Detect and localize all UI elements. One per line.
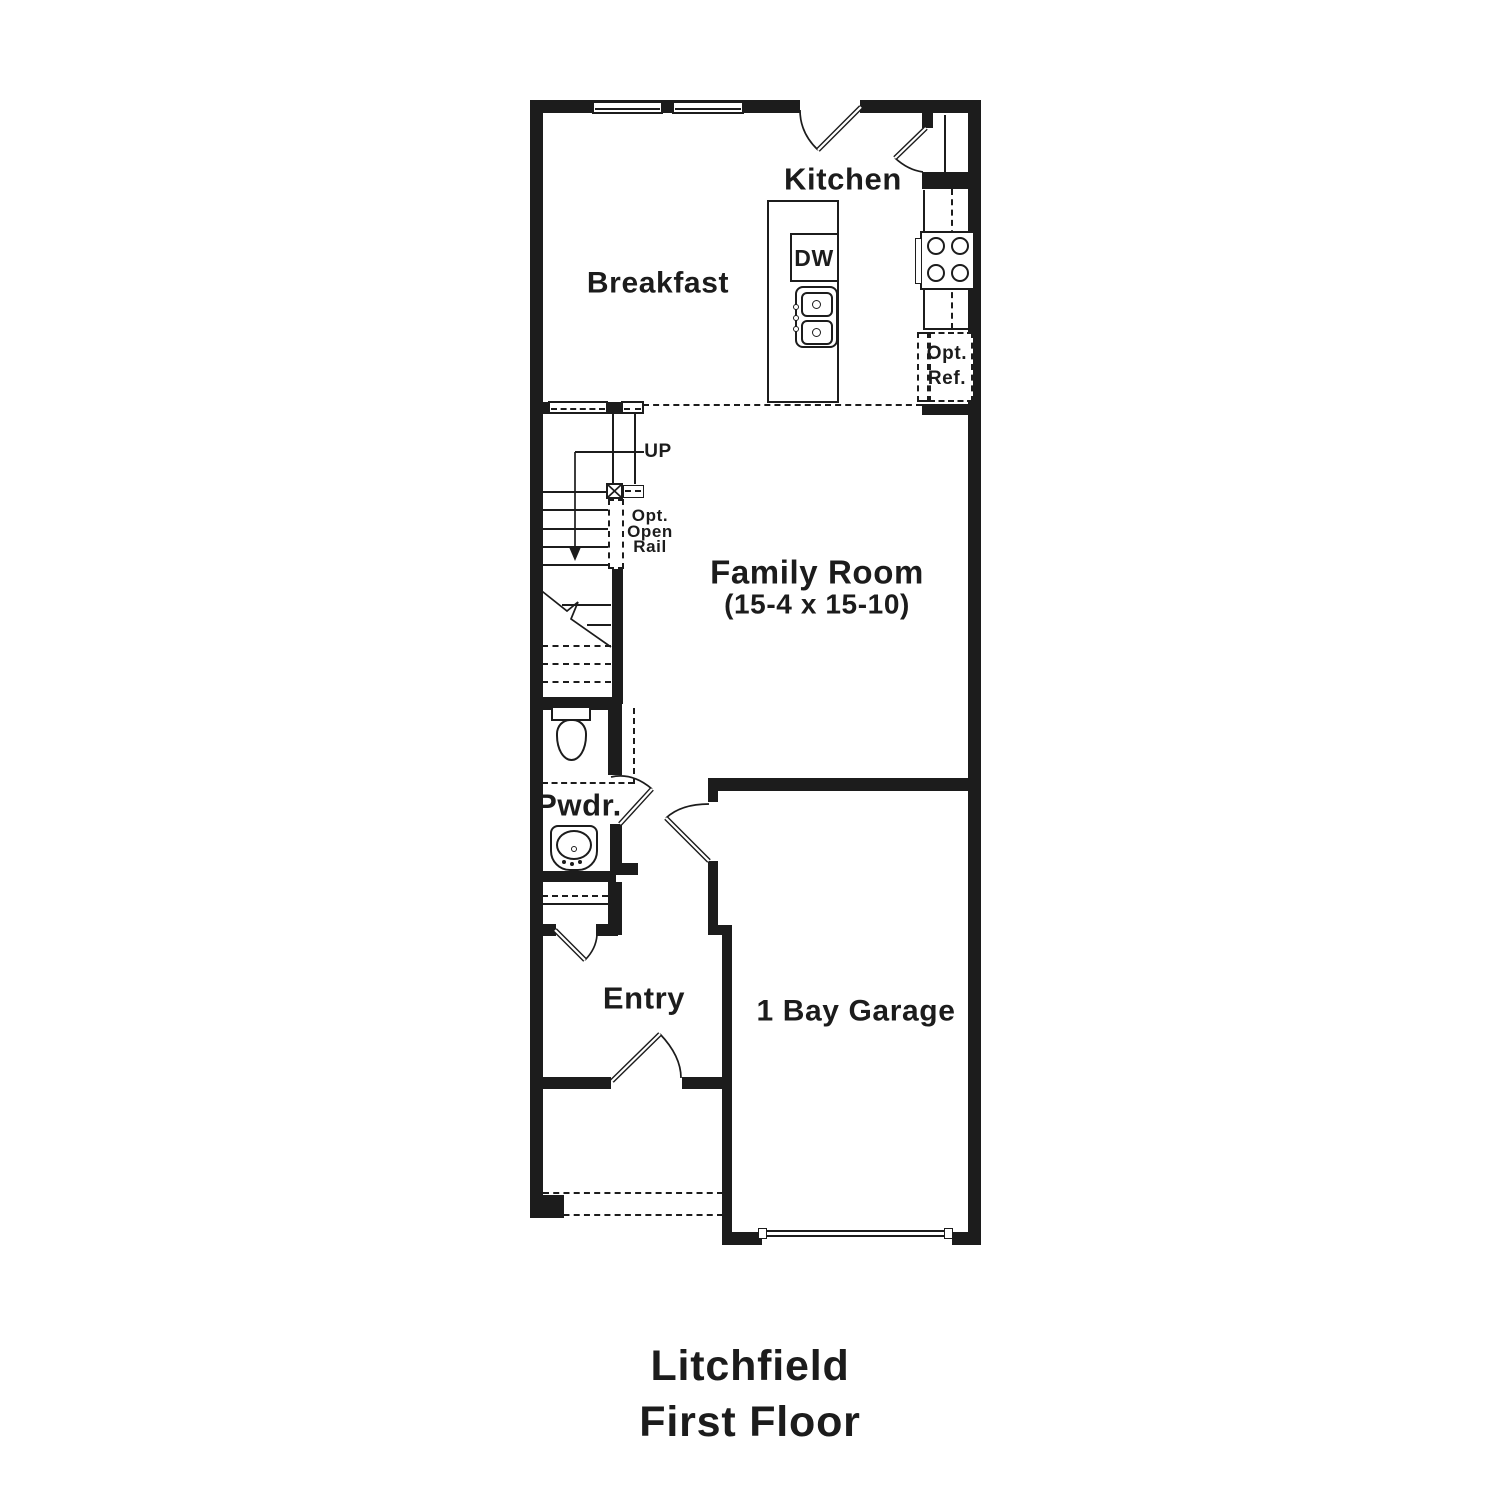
stair-upper-tread-dashed-2 (542, 663, 611, 665)
window-glass-line (595, 108, 660, 110)
stair-guide-line-2 (634, 414, 636, 484)
powder-faucet-dot-2 (570, 862, 574, 866)
room-label-family-room-dims: (15-4 x 15-10) (724, 589, 910, 618)
wall-stair-right (612, 564, 623, 704)
stair-upper-tread-dashed-3 (542, 681, 611, 683)
closet-door-swing (555, 930, 597, 960)
stair-rail-vertical (608, 499, 624, 569)
stair-guide-line-1 (612, 414, 614, 484)
floor-plan-page: DW Opt. Ref. UP Opt. Open Rail (0, 0, 1500, 1500)
wall-top-left (530, 100, 800, 113)
stair-tread-4 (542, 546, 611, 548)
sink-knob-1 (793, 304, 799, 310)
wall-garage-left-lower (722, 925, 732, 1245)
back-door-swing (800, 107, 861, 150)
wall-closet-door-left (530, 924, 556, 936)
stove-handle (915, 238, 922, 284)
up-leader-line (575, 451, 644, 453)
powder-sink-bowl (556, 830, 592, 860)
window-breakfast-top-2 (672, 101, 744, 114)
front-door-swing (612, 1034, 681, 1081)
window-breakfast-side-1 (548, 401, 608, 414)
stair-tread-partial-1 (562, 604, 611, 606)
opt-ref-line1: Opt. (927, 341, 967, 366)
stove-burner-3 (927, 264, 945, 282)
window-glass-line (675, 108, 741, 110)
wall-breakfast-corner (530, 402, 548, 414)
window-breakfast-side-2 (621, 401, 644, 414)
kitchen-breakfast-divider-dashed (643, 404, 922, 406)
garage-entry-door-swing (666, 804, 709, 861)
sink-knob-2 (793, 315, 799, 321)
room-label-garage: 1 Bay Garage (757, 995, 956, 1027)
wall-window-stub (607, 402, 622, 414)
opt-open-rail-label: Opt. Open Rail (627, 508, 673, 555)
stair-tread-1 (542, 491, 611, 493)
stove-burner-2 (951, 237, 969, 255)
wall-left-exterior (530, 100, 543, 1218)
powder-sink-drain (571, 846, 577, 852)
rail-hatch-line (625, 490, 641, 492)
wall-top-right (860, 100, 981, 113)
window-glass-line (624, 408, 641, 410)
dishwasher-label: DW (794, 246, 834, 270)
garage-door-cap-right (944, 1228, 953, 1239)
rail-line3: Rail (627, 539, 673, 555)
opt-ref-label: Opt. Ref. (927, 341, 967, 391)
stair-tread-5 (542, 564, 611, 566)
wall-garage-left-mid (708, 861, 718, 925)
room-label-kitchen: Kitchen (784, 164, 902, 197)
stair-rail-horizontal (623, 485, 644, 498)
pantry-shelf-line (944, 115, 946, 172)
sink-drain-bottom (812, 328, 821, 337)
sink-knob-3 (793, 326, 799, 332)
stair-upper-tread-dashed-1 (542, 645, 611, 647)
stair-newel-post (606, 483, 623, 499)
room-label-breakfast: Breakfast (587, 267, 729, 299)
stair-tread-3 (542, 528, 611, 530)
stair-break-line (538, 588, 611, 647)
toilet-bowl (556, 719, 587, 761)
room-label-entry: Entry (603, 983, 685, 1016)
room-label-powder: Pwdr. (536, 790, 622, 823)
wall-powder-stub (610, 863, 638, 875)
stove-burner-1 (927, 237, 945, 255)
wall-powder-bottom (530, 871, 616, 882)
window-glass-line (551, 408, 605, 410)
wall-kitchen-divider-right (922, 404, 968, 415)
plan-title: Litchfield First Floor (0, 1338, 1500, 1450)
wall-closet-door-right (596, 924, 618, 936)
sink-drain-top (812, 300, 821, 309)
wall-garage-top (708, 778, 981, 791)
up-label: UP (644, 442, 672, 462)
powder-opt-door-dashed-v (633, 708, 635, 784)
plan-title-name: Litchfield (0, 1338, 1500, 1394)
garage-door-panel (762, 1230, 952, 1237)
porch-edge-dashed-bottom (543, 1214, 723, 1216)
plan-linework-overlay (0, 0, 1500, 1500)
powder-faucet-dot-1 (562, 860, 566, 864)
plan-title-floor: First Floor (0, 1394, 1500, 1450)
wall-entry-bottom-left (530, 1077, 611, 1089)
wall-pantry-bottom (922, 172, 968, 189)
wall-pantry-stub (922, 113, 933, 128)
closet-shelf-line (542, 903, 608, 905)
room-label-family-room: Family Room (710, 556, 924, 591)
closet-rod-dashed (542, 895, 608, 897)
powder-opt-door-dashed-h (542, 782, 634, 784)
wall-powder-right-upper (608, 710, 622, 775)
window-breakfast-top-1 (592, 101, 663, 114)
porch-edge-dashed-top (543, 1192, 723, 1194)
wall-garage-bottom-right (952, 1232, 981, 1245)
wall-entry-bottom-right (682, 1077, 727, 1089)
wall-garage-bottom-left (722, 1232, 762, 1245)
garage-door-cap-left (758, 1228, 767, 1239)
stair-direction-arrow (569, 452, 581, 561)
counter-bottom-line (923, 328, 968, 330)
opt-ref-line2: Ref. (927, 366, 967, 391)
stair-tread-partial-2 (587, 624, 611, 626)
powder-faucet-dot-3 (578, 860, 582, 864)
wall-garage-left-stub (708, 791, 718, 802)
stove-burner-4 (951, 264, 969, 282)
stair-tread-2 (542, 509, 611, 511)
